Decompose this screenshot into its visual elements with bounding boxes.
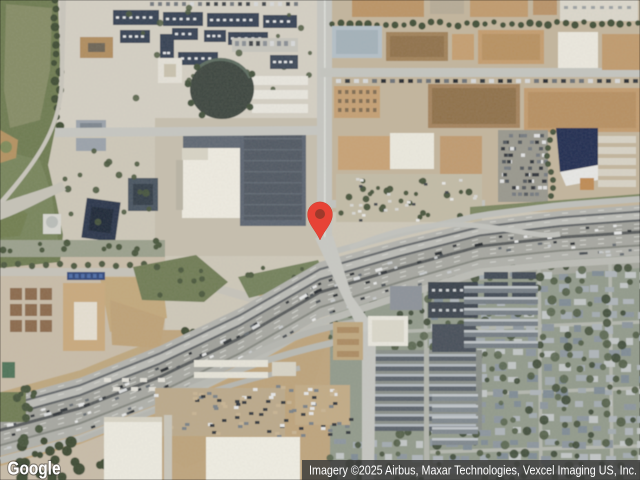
svg-text:Google: Google [8,459,61,479]
svg-text:Imagery ©2025 Airbus, Maxar Te: Imagery ©2025 Airbus, Maxar Technologies… [309,463,637,478]
